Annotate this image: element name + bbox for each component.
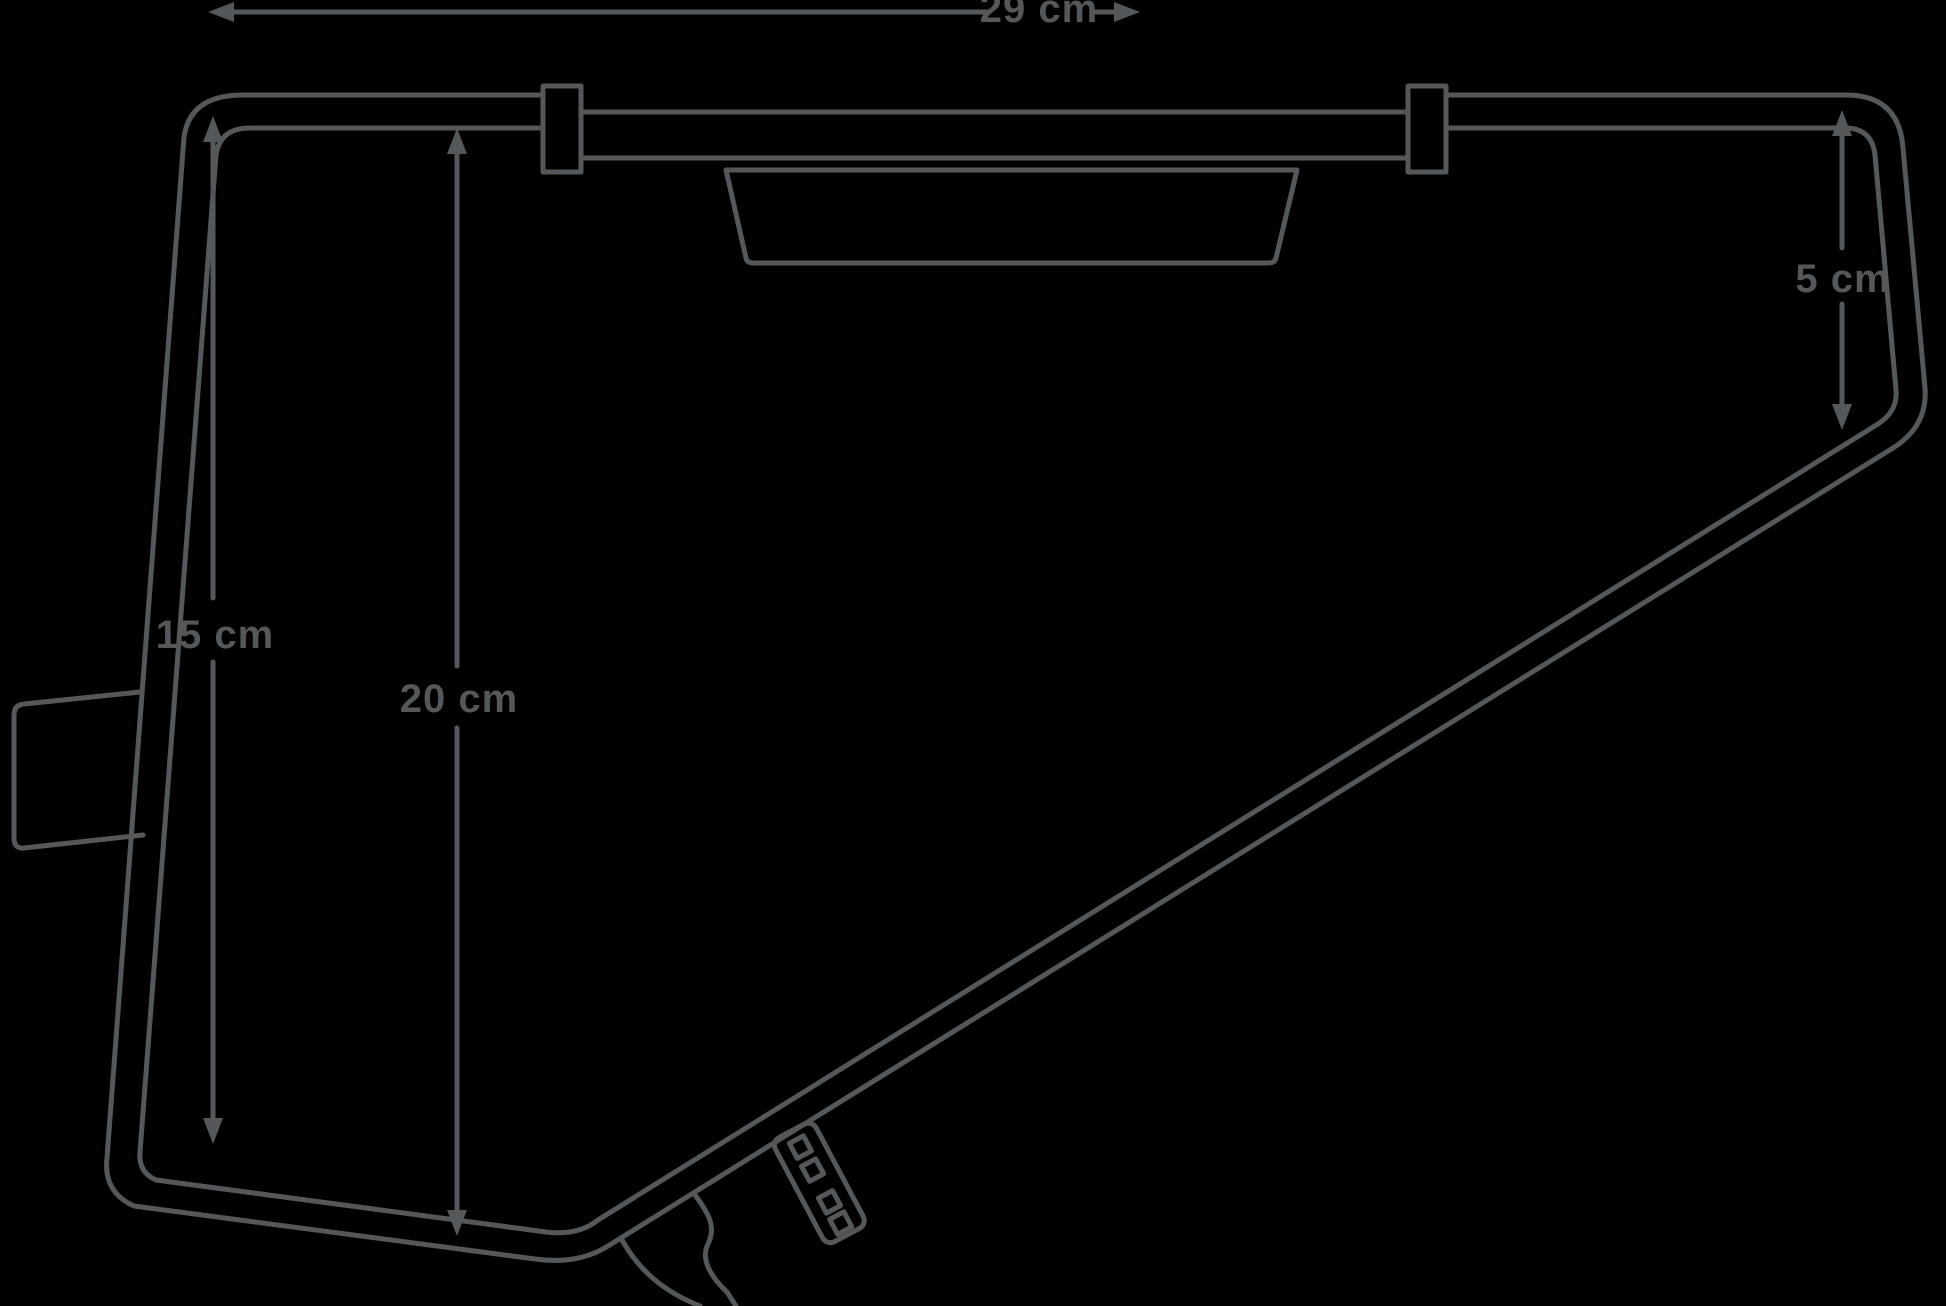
strap-bracket-left xyxy=(543,86,581,172)
bag-outline xyxy=(107,95,1926,1260)
buckle-slot-1 xyxy=(789,1136,811,1159)
dim-right-label: 5 cm xyxy=(1795,257,1890,301)
dim-top-label: 29 cm xyxy=(980,0,1098,31)
buckle xyxy=(771,1120,867,1246)
frame-bag-diagram: 29 cm 15 cm 20 cm 5 cm xyxy=(0,0,1946,1306)
dim-left-arrowhead-down xyxy=(203,1118,223,1144)
bottom-strap-left-edge xyxy=(622,1240,700,1306)
buckle-slot-3 xyxy=(818,1191,840,1214)
dim-left-label: 15 cm xyxy=(156,613,274,657)
toptube-strap-flap xyxy=(726,170,1297,263)
zipper-slot xyxy=(484,449,1151,848)
strap-bracket-right xyxy=(1408,86,1446,172)
top-strap xyxy=(543,86,1446,263)
bottom-strap-right-edge xyxy=(695,1195,736,1306)
top-strap-bar xyxy=(563,112,1408,158)
bag-outer-outline xyxy=(107,95,1926,1260)
dim-right-arrowhead-down xyxy=(1832,404,1852,430)
buckle-slot-2 xyxy=(802,1159,824,1182)
dim-top-arrowhead-right xyxy=(1114,2,1140,22)
side-strap-tab xyxy=(14,692,143,848)
buckle-slot-4 xyxy=(830,1212,852,1235)
dim-middle-label: 20 cm xyxy=(400,677,518,721)
diagram-canvas: 29 cm 15 cm 20 cm 5 cm xyxy=(0,0,1946,1306)
zipper-slot-inner xyxy=(484,449,1151,848)
dim-top-width: 29 cm xyxy=(208,0,1140,31)
dim-middle-height: 20 cm xyxy=(400,128,518,1236)
